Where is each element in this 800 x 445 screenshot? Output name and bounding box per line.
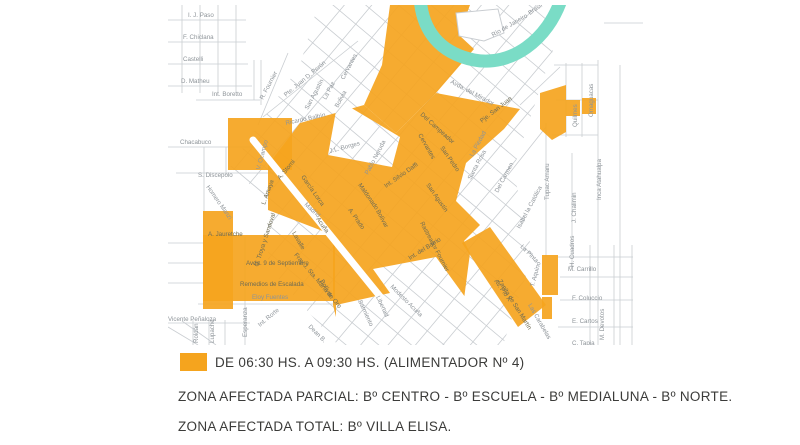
- legend: DE 06:30 HS. A 09:30 HS. (ALIMENTADOR Nº…: [180, 353, 524, 371]
- street-label: H. Cuadros: [569, 236, 576, 267]
- note-partial: ZONA AFECTADA PARCIAL: Bº CENTRO - Bº ES…: [178, 389, 732, 404]
- street-label: Quilmes: [572, 104, 579, 127]
- street-label: A. Jauretche: [208, 231, 243, 238]
- street-label: Del Carmen: [494, 161, 516, 194]
- street-label: I. J. Paso: [188, 12, 214, 19]
- street-label: Isabel la Católica: [516, 185, 545, 230]
- note-total: ZONA AFECTADA TOTAL: Bº VILLA ELISA.: [178, 419, 452, 434]
- street-label: Omaguacas: [588, 84, 595, 117]
- legend-label: DE 06:30 HS. A 09:30 HS. (ALIMENTADOR Nº…: [215, 355, 524, 370]
- street-label: F. Chiclana: [183, 34, 214, 41]
- street-label: Esperanza: [242, 307, 249, 337]
- street-label: M. Devotos: [599, 309, 606, 340]
- street-label: Remedios de Escalada: [240, 281, 304, 288]
- street-label: Chacabuco: [180, 139, 212, 146]
- outage-flyer: I. J. PasoF. ChiclanaCastelliD. MatheuIn…: [0, 0, 800, 445]
- street-label: E. Cartos: [572, 318, 598, 325]
- street-label: Pte. Juan D. Perón: [283, 59, 328, 98]
- street-label: Inca Atahualpa: [596, 159, 603, 200]
- street-label: M. Carrillo: [568, 266, 597, 273]
- street-label: Cervantes: [340, 53, 359, 81]
- street-label: C. Tapia: [572, 340, 595, 345]
- city-map: I. J. PasoF. ChiclanaCastelliD. MatheuIn…: [168, 5, 643, 345]
- street-label: Roldán: [193, 323, 200, 343]
- map-canvas: I. J. PasoF. ChiclanaCastelliD. MatheuIn…: [168, 5, 643, 345]
- street-label: R. Fournier: [259, 70, 280, 101]
- street-label: Eloy Fuentes: [252, 294, 288, 301]
- street-label: T. Aquino: [529, 261, 542, 288]
- street-label: S. Discepolo: [198, 172, 233, 179]
- street-label: Castelli: [183, 56, 203, 63]
- street-label: Lupache: [209, 319, 216, 343]
- street-label: Int. Rorte: [257, 306, 281, 328]
- street-label: F. Coluccio: [572, 295, 603, 302]
- street-label: Int. Boretto: [212, 91, 243, 98]
- street-label: J. Chalimin: [571, 192, 578, 223]
- street-label: Tupac Amaru: [544, 163, 551, 200]
- street-label: D. Matheu: [181, 78, 210, 85]
- legend-swatch: [180, 353, 207, 371]
